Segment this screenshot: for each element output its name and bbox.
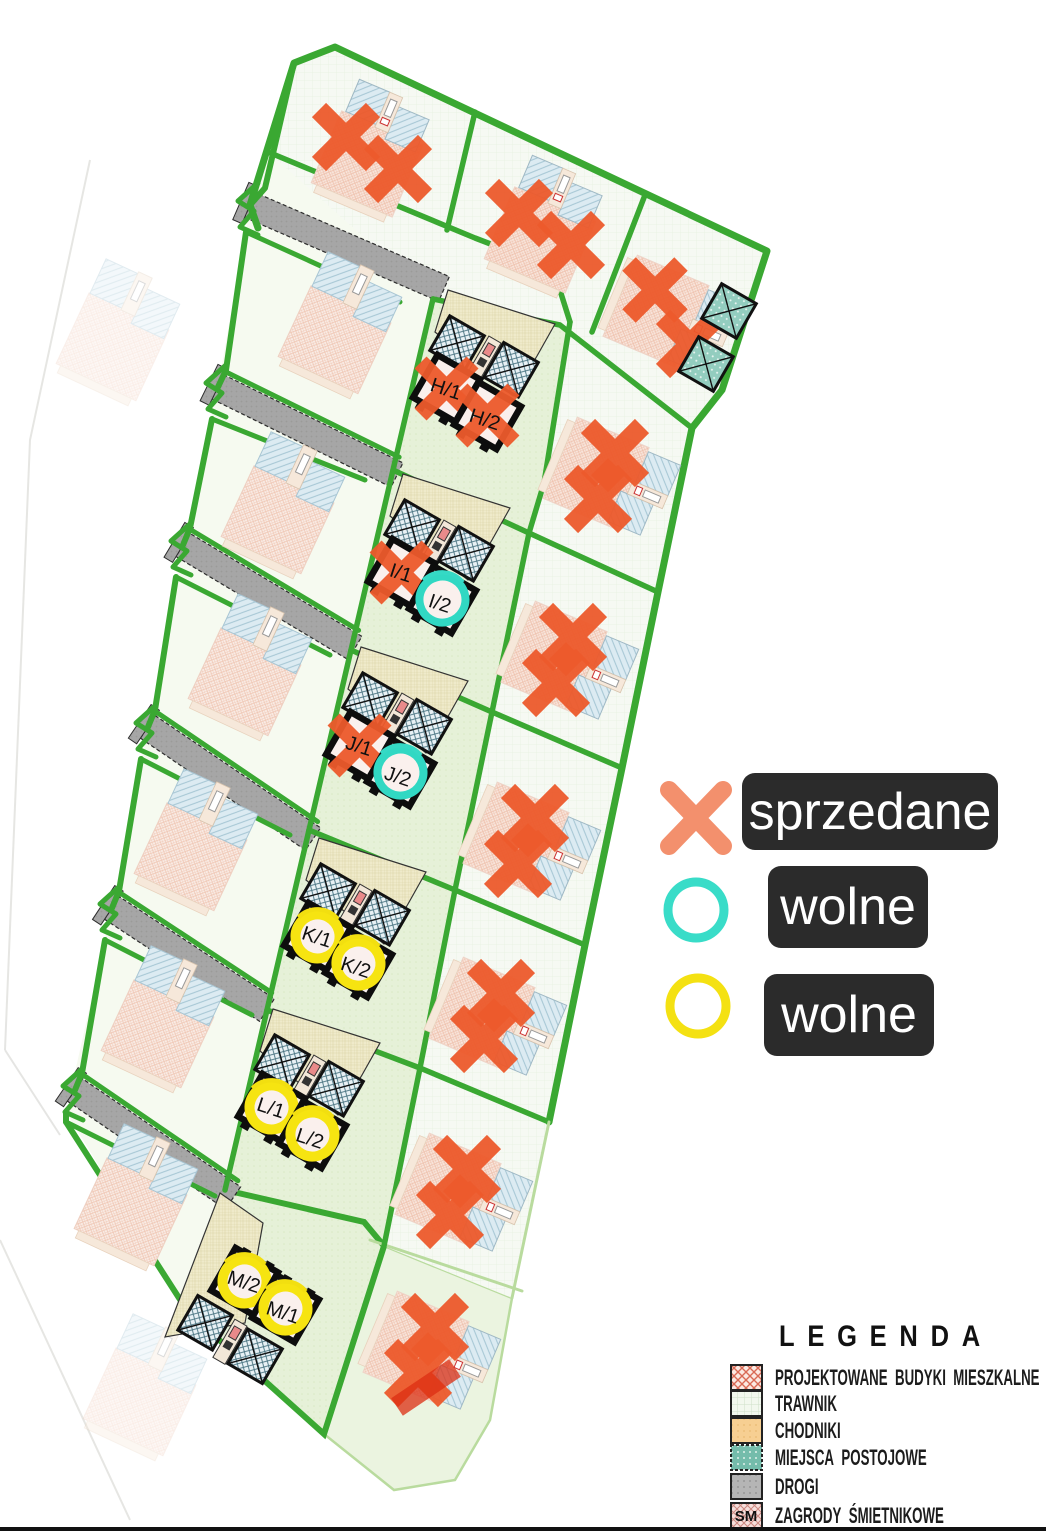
svg-text:SM: SM: [735, 1508, 758, 1525]
